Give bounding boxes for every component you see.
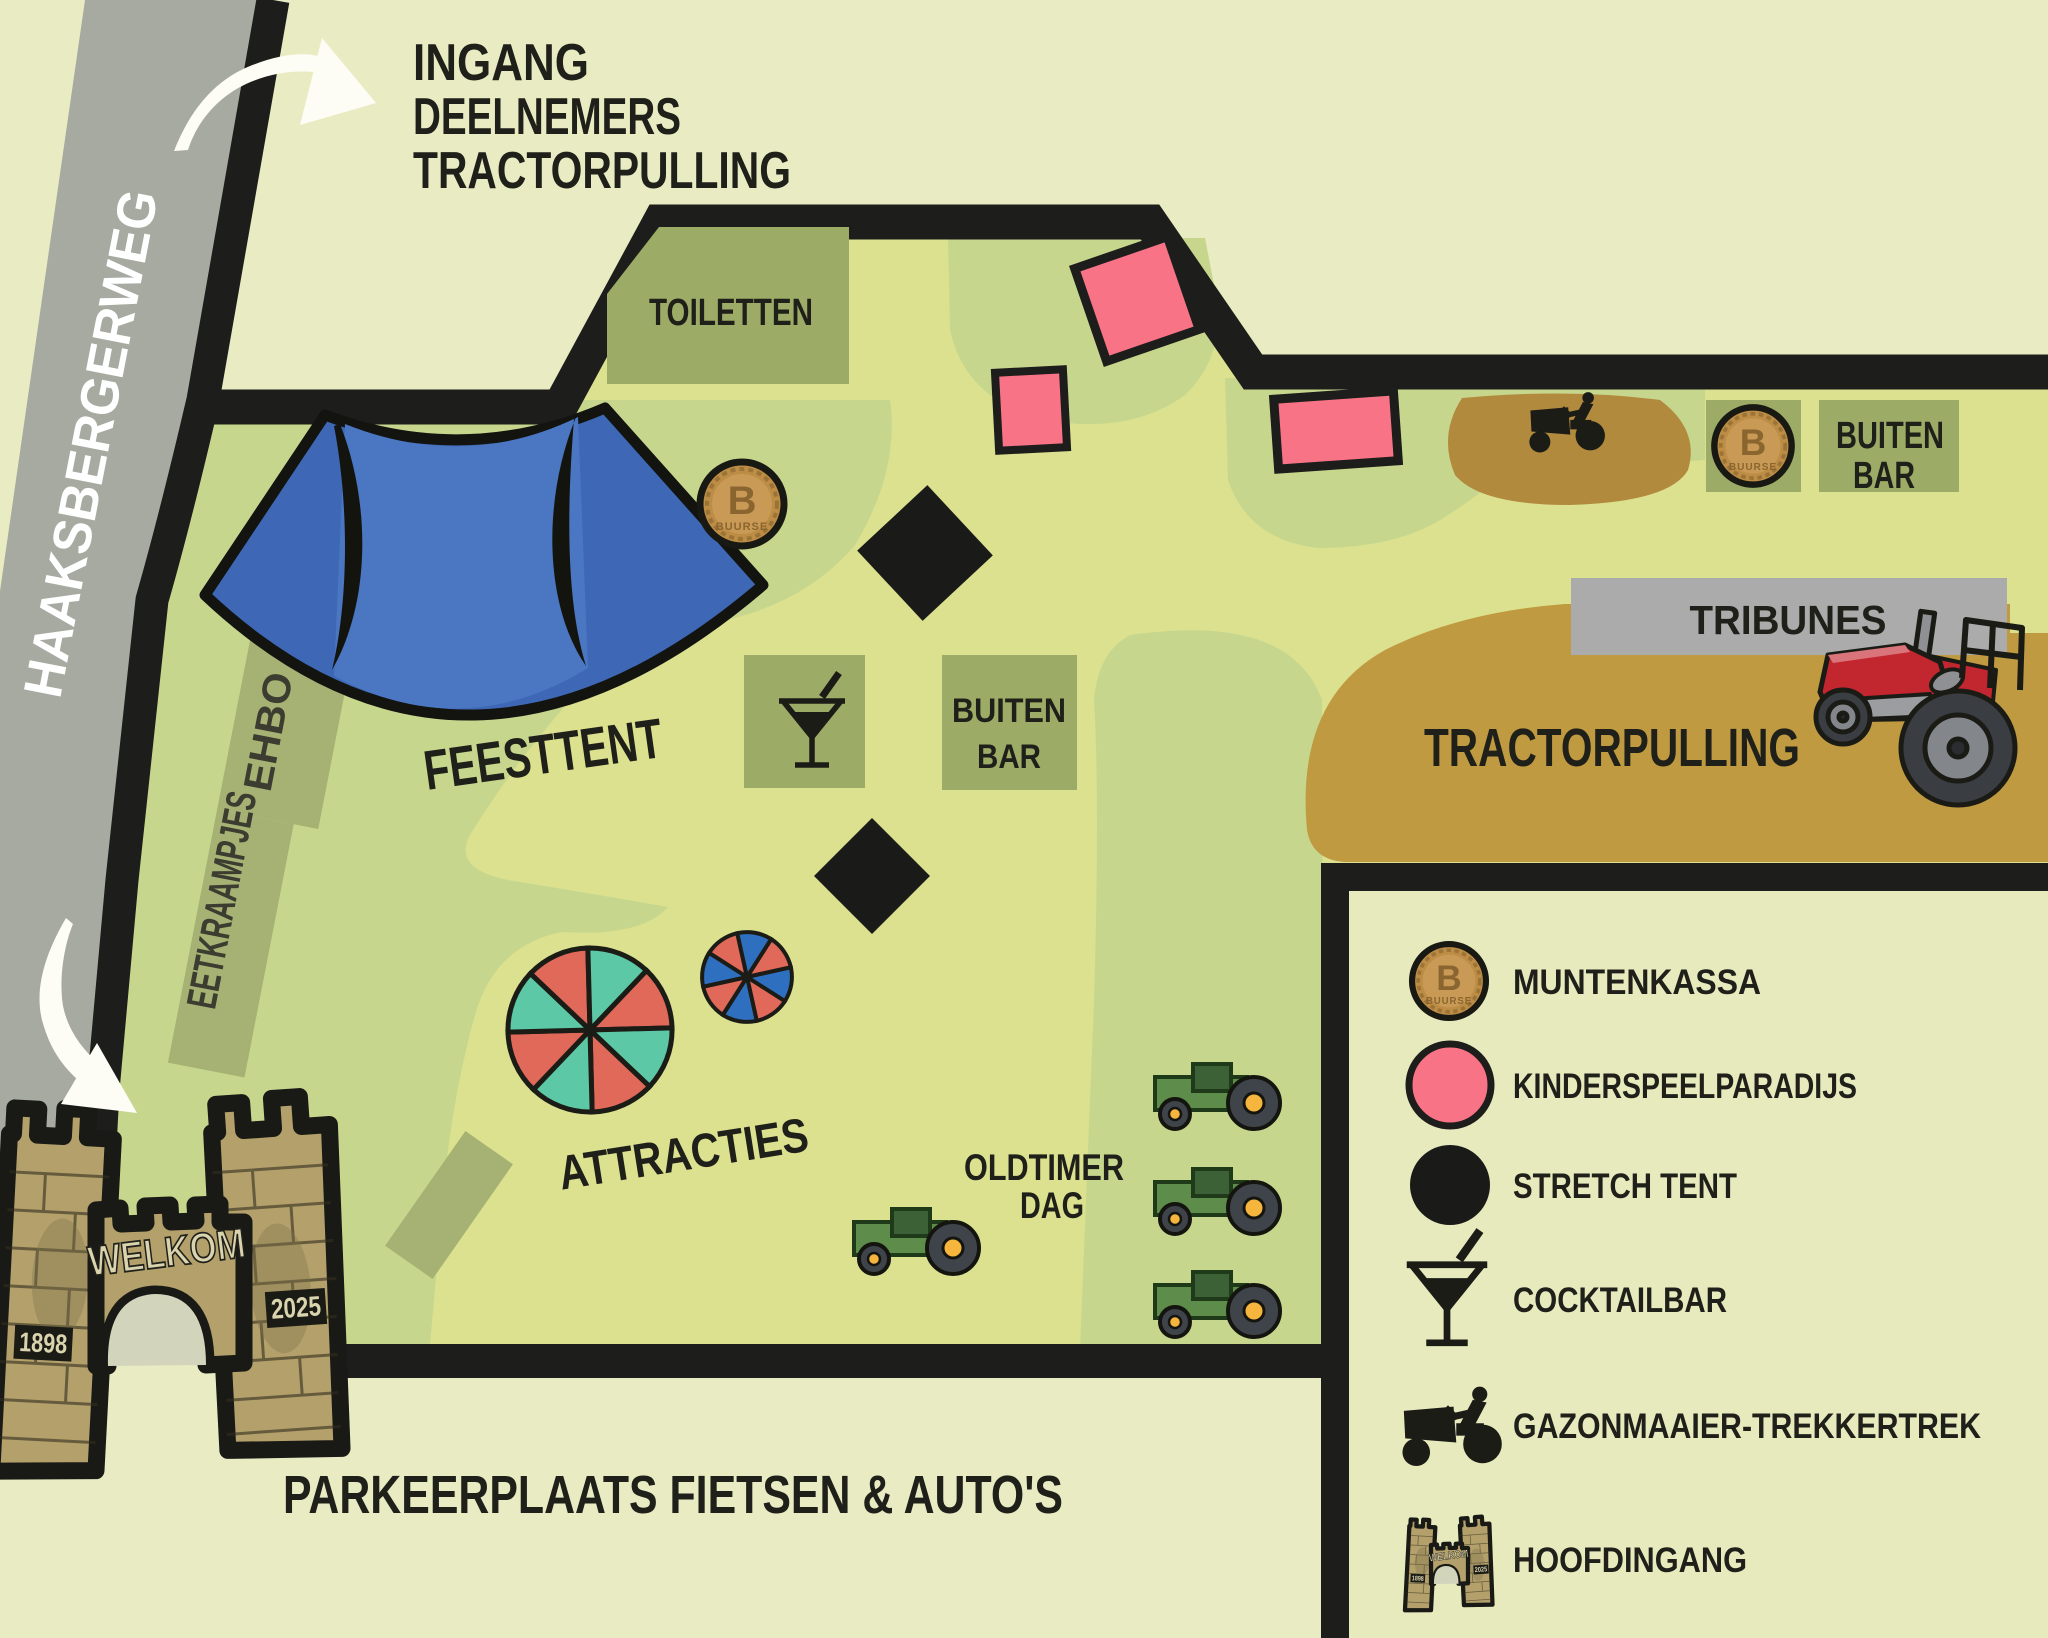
svg-text:BAR: BAR	[1853, 455, 1915, 497]
svg-text:KINDERSPEELPARADIJS: KINDERSPEELPARADIJS	[1513, 1067, 1857, 1106]
svg-text:DAG: DAG	[1020, 1185, 1084, 1226]
svg-text:DEELNEMERS: DEELNEMERS	[413, 88, 681, 146]
svg-text:MUNTENKASSA: MUNTENKASSA	[1513, 963, 1761, 1002]
svg-text:PARKEERPLAATS FIETSEN & AUTO'S: PARKEERPLAATS FIETSEN & AUTO'S	[283, 1465, 1063, 1525]
svg-text:INGANG: INGANG	[413, 34, 589, 92]
svg-text:TRACTORPULLING: TRACTORPULLING	[413, 142, 791, 200]
svg-text:TOILETTEN: TOILETTEN	[649, 292, 813, 334]
svg-text:STRETCH TENT: STRETCH TENT	[1513, 1167, 1737, 1206]
svg-text:HOOFDINGANG: HOOFDINGANG	[1513, 1541, 1747, 1580]
svg-text:COCKTAILBAR: COCKTAILBAR	[1513, 1281, 1727, 1320]
svg-text:TRIBUNES: TRIBUNES	[1690, 597, 1887, 643]
svg-text:TRACTORPULLING: TRACTORPULLING	[1424, 718, 1800, 778]
svg-text:BAR: BAR	[977, 738, 1041, 776]
svg-text:BUITEN: BUITEN	[1836, 415, 1944, 457]
svg-text:OLDTIMER: OLDTIMER	[964, 1147, 1124, 1188]
svg-text:BUITEN: BUITEN	[952, 692, 1066, 730]
svg-text:GAZONMAAIER-TREKKERTREK: GAZONMAAIER-TREKKERTREK	[1513, 1407, 1981, 1446]
